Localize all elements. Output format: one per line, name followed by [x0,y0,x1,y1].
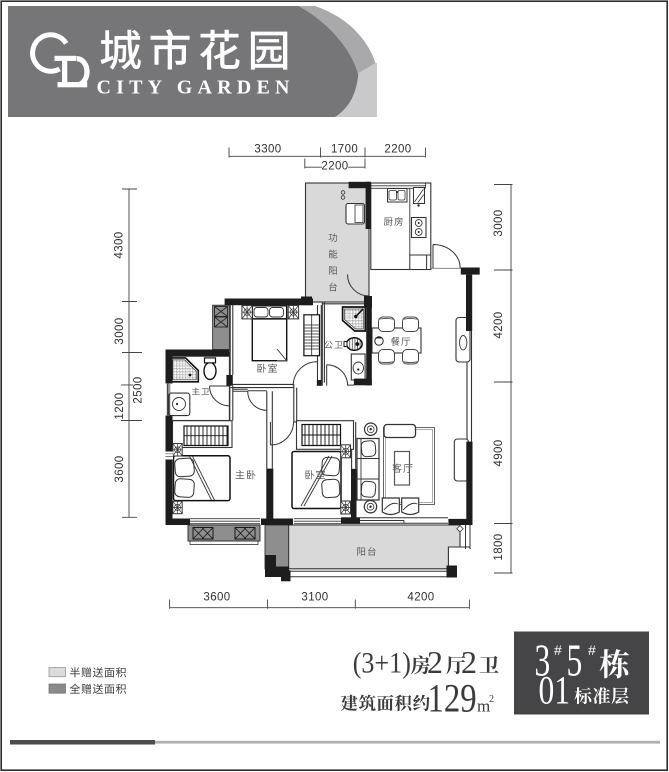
svg-text:3000: 3000 [493,209,505,236]
svg-text:1200: 1200 [114,392,126,419]
svg-text:3300: 3300 [254,144,281,156]
svg-text:3100: 3100 [301,592,328,604]
svg-text:3000: 3000 [114,317,126,344]
svg-text:4200: 4200 [493,311,505,338]
svg-text:#: # [554,642,562,658]
svg-text:3600: 3600 [114,455,126,482]
svg-text:2500: 2500 [133,376,145,403]
svg-text:01: 01 [539,668,571,712]
svg-text:4900: 4900 [493,439,505,466]
svg-text:1800: 1800 [493,533,505,560]
svg-text:129: 129 [428,675,477,720]
svg-text:2200: 2200 [321,161,348,173]
svg-text:4300: 4300 [114,231,126,258]
svg-text:#: # [588,642,596,658]
svg-text:2: 2 [489,694,494,705]
svg-text:(3+1): (3+1) [353,647,411,680]
svg-text:2200: 2200 [384,144,411,156]
svg-text:4200: 4200 [407,592,434,604]
svg-text:3600: 3600 [203,592,230,604]
svg-text:1700: 1700 [331,144,358,156]
svg-text:CITY GARDEN: CITY GARDEN [97,77,295,99]
